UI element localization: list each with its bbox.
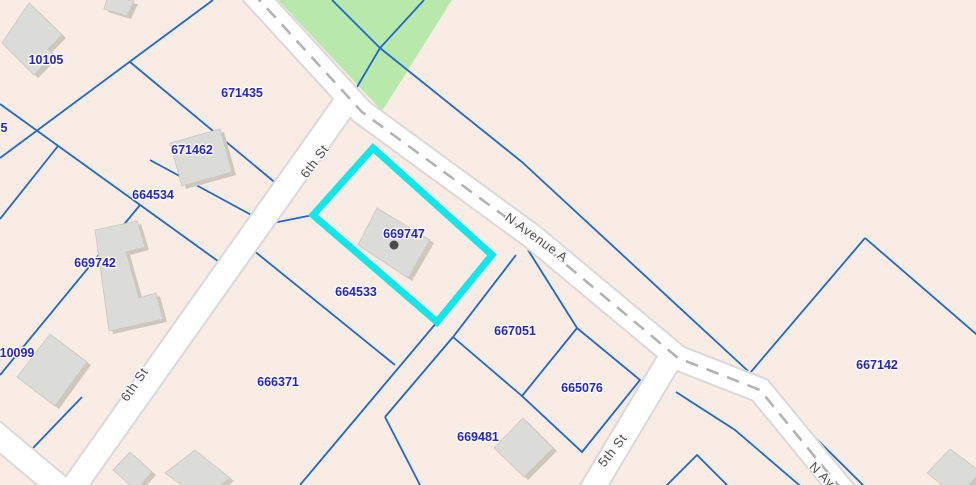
parcel-map-viewport: 10105 671435 671462 664534 669742 10099 …: [0, 0, 976, 485]
parcel-label-669747: 669747: [383, 227, 425, 241]
parcel-label-667051: 667051: [494, 324, 536, 338]
parcel-map-canvas[interactable]: 10105 671435 671462 664534 669742 10099 …: [0, 0, 976, 485]
parcel-label-664533: 664533: [335, 285, 377, 299]
parcel-label-671435: 671435: [221, 86, 263, 100]
parcel-label-667142: 667142: [856, 358, 898, 372]
selected-parcel-dot: [390, 241, 399, 250]
parcel-label-666371: 666371: [257, 375, 299, 389]
parcel-label-10105: 10105: [29, 53, 64, 67]
parcel-label-664534: 664534: [132, 188, 174, 202]
parcel-label-669742: 669742: [74, 256, 116, 270]
parcel-label-10099: 10099: [0, 346, 34, 360]
parcel-label-partial-5: 5: [1, 121, 8, 135]
parcel-label-671462: 671462: [171, 143, 213, 157]
parcel-label-665076: 665076: [561, 381, 603, 395]
parcel-label-669481: 669481: [457, 430, 499, 444]
